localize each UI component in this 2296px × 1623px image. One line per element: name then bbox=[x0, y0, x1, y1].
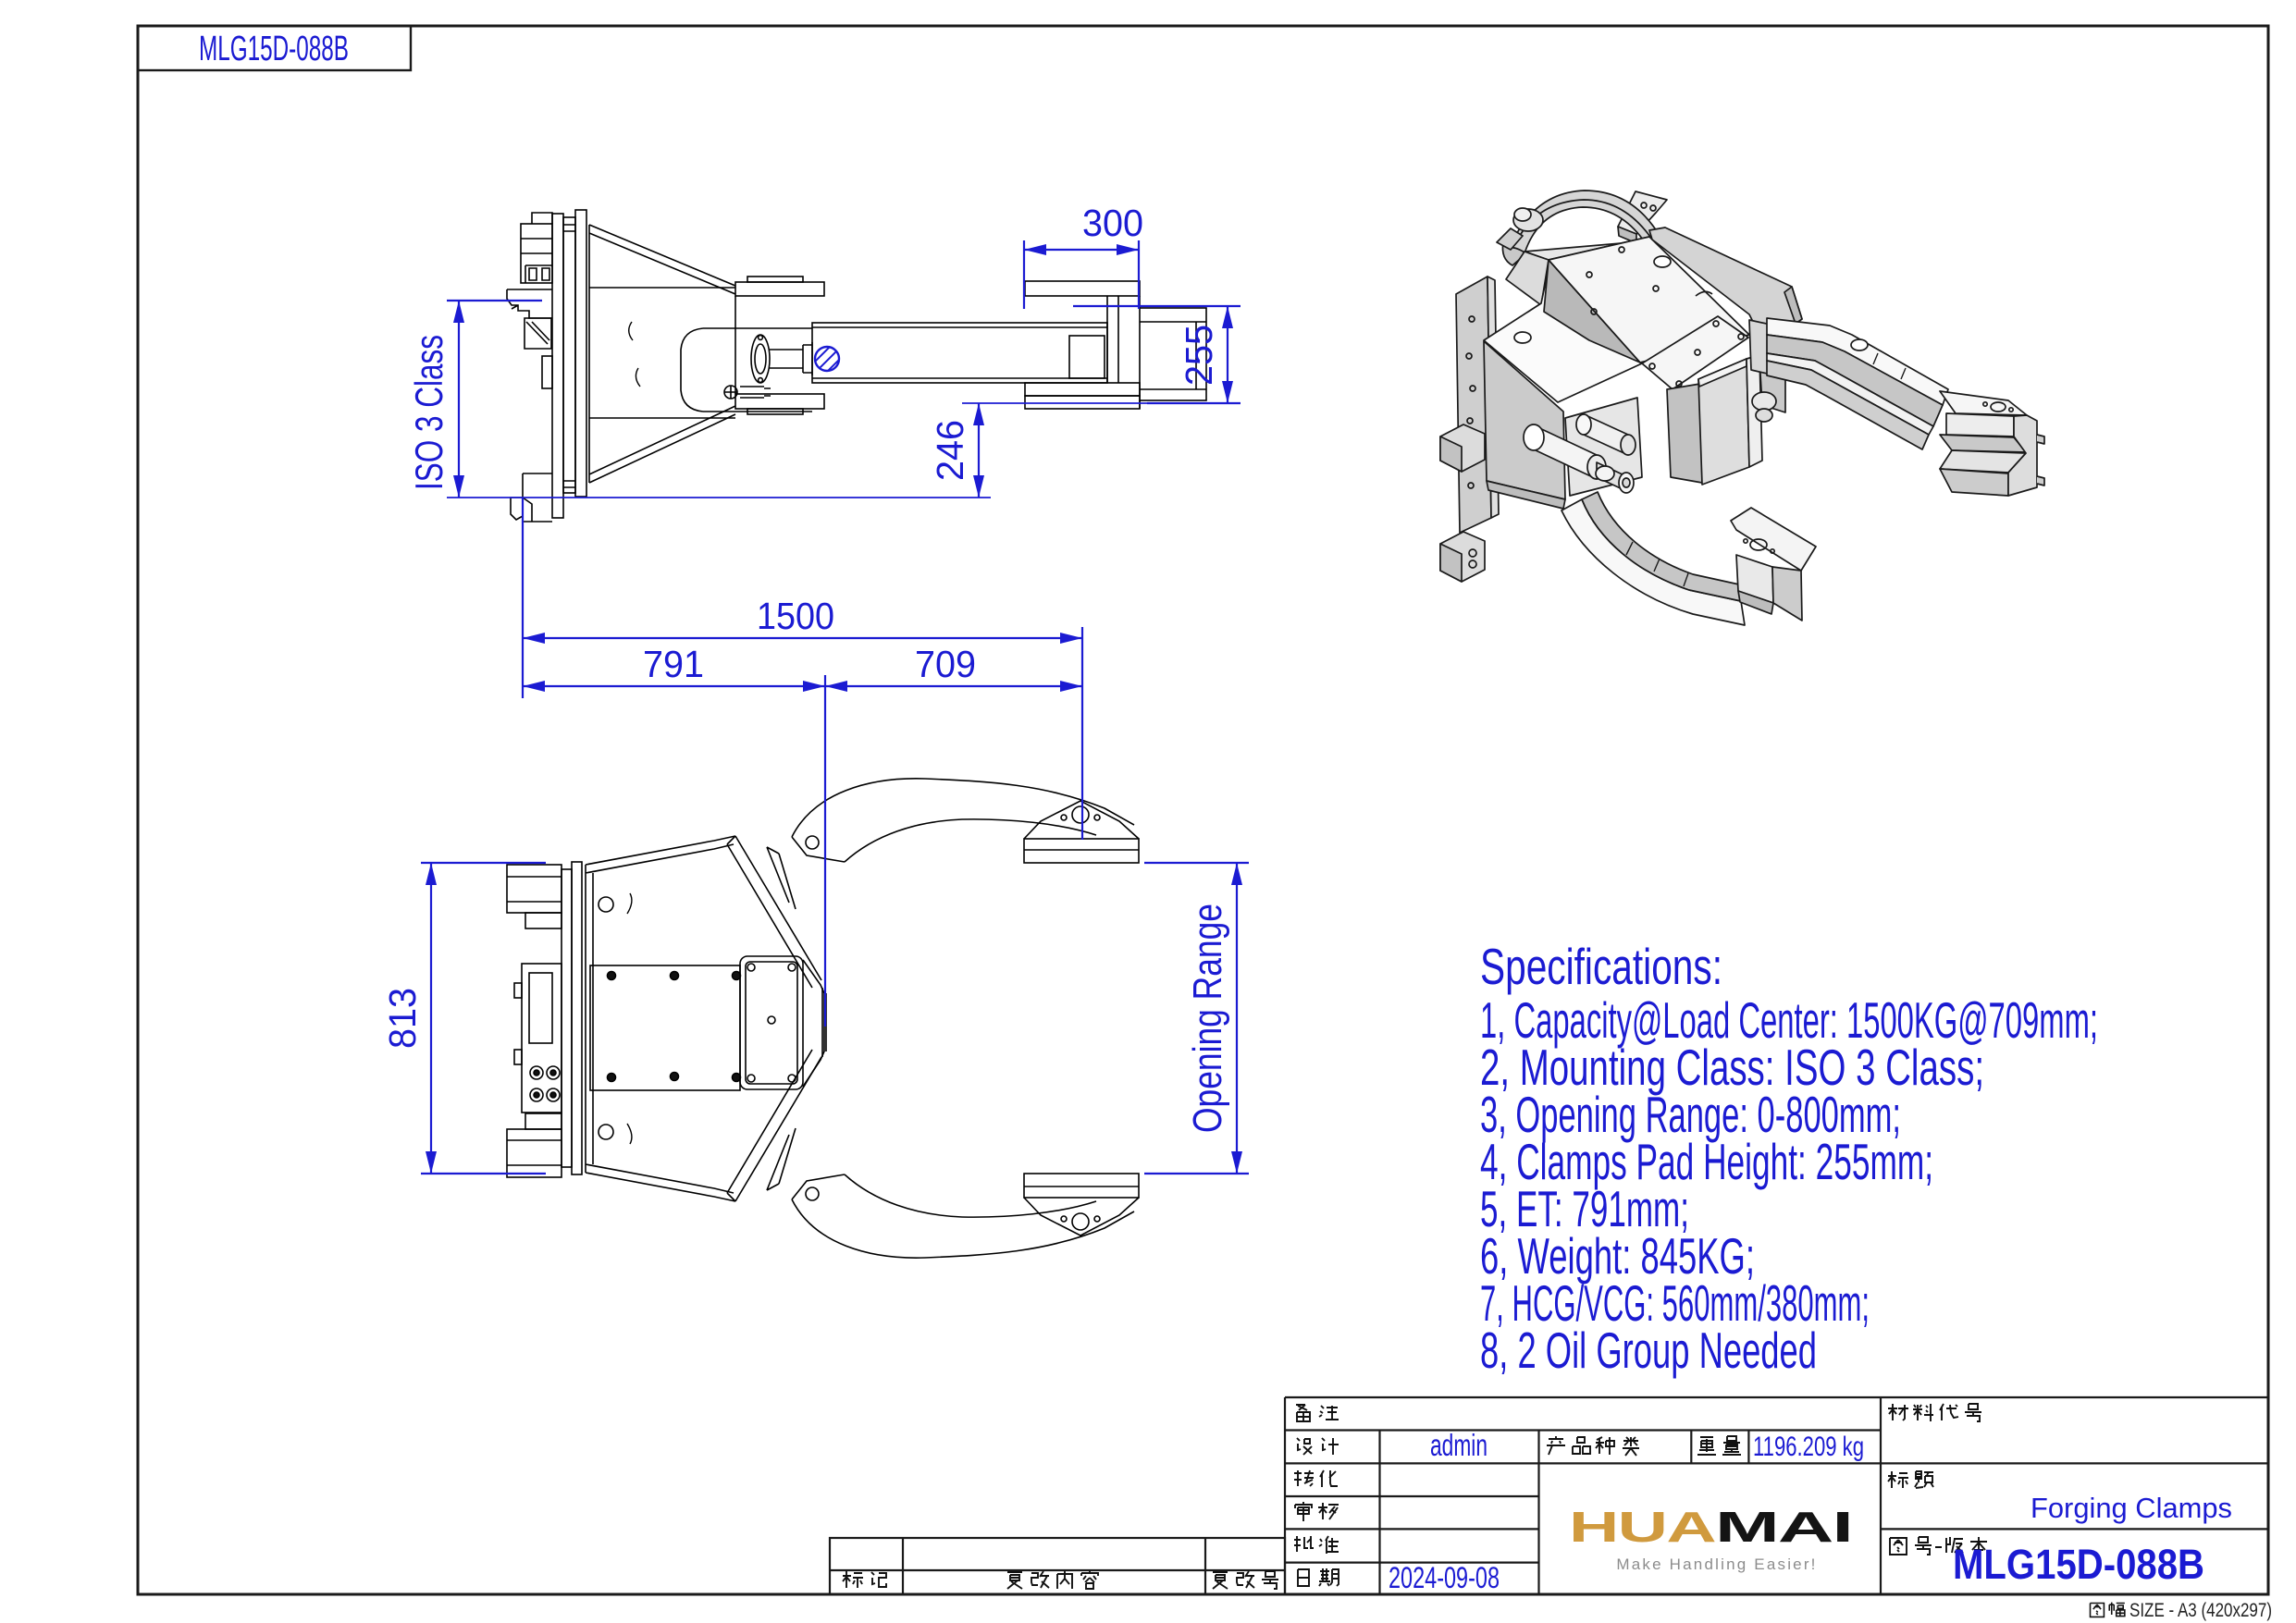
svg-text:MLG15D-088B: MLG15D-088B bbox=[1953, 1541, 2204, 1588]
svg-text:MLG15D-088B: MLG15D-088B bbox=[199, 30, 349, 68]
svg-text:791: 791 bbox=[643, 643, 704, 685]
svg-text:admin: admin bbox=[1430, 1428, 1487, 1462]
svg-text:1196.209 kg: 1196.209 kg bbox=[1753, 1432, 1864, 1462]
svg-text:Specifications:: Specifications: bbox=[1480, 938, 1722, 995]
svg-text:709: 709 bbox=[915, 643, 976, 685]
svg-text:Forging Clamps: Forging Clamps bbox=[2031, 1492, 2232, 1524]
svg-text:813: 813 bbox=[381, 988, 424, 1049]
svg-text:1500: 1500 bbox=[757, 595, 834, 637]
svg-text:Opening Range: Opening Range bbox=[1185, 904, 1230, 1133]
svg-text:MAI: MAI bbox=[1715, 1503, 1852, 1551]
svg-text:ISO 3 Class: ISO 3 Class bbox=[407, 335, 451, 490]
svg-text:8, 2 Oil Group Needed: 8, 2 Oil Group Needed bbox=[1480, 1322, 1817, 1379]
svg-text:HUA: HUA bbox=[1569, 1503, 1715, 1551]
svg-text:SIZE - A3 (420x297): SIZE - A3 (420x297) bbox=[2129, 1600, 2272, 1621]
svg-text:Make Handling Easier!: Make Handling Easier! bbox=[1616, 1555, 1817, 1573]
svg-text:255: 255 bbox=[1178, 325, 1220, 386]
svg-text:246: 246 bbox=[929, 420, 971, 481]
svg-text:300: 300 bbox=[1082, 202, 1143, 244]
svg-text:2024-09-08: 2024-09-08 bbox=[1389, 1561, 1500, 1594]
